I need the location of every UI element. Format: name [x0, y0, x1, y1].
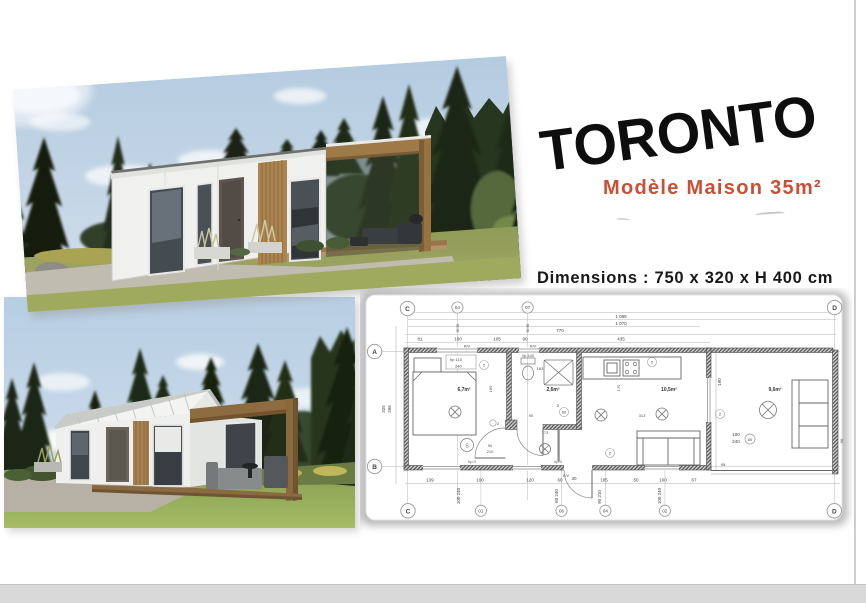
svg-text:2,6m²: 2,6m²: [546, 387, 559, 393]
svg-text:50: 50: [633, 478, 639, 483]
svg-text:50 50: 50 50: [526, 324, 530, 333]
svg-text:02: 02: [662, 508, 668, 513]
svg-text:B: B: [372, 464, 377, 471]
svg-text:A: A: [372, 349, 377, 356]
svg-text:07: 07: [525, 305, 531, 310]
svg-text:90: 90: [488, 443, 493, 448]
svg-text:6,7m²: 6,7m²: [457, 387, 470, 393]
svg-text:60: 60: [562, 410, 567, 415]
svg-text:325: 325: [381, 405, 386, 413]
svg-text:170: 170: [616, 384, 621, 391]
svg-text:240: 240: [455, 364, 462, 369]
svg-text:01: 01: [478, 508, 484, 513]
svg-text:30: 30: [571, 476, 577, 481]
svg-text:hp 110: hp 110: [450, 357, 463, 362]
svg-text:hp 140: hp 140: [522, 354, 534, 358]
svg-text:190: 190: [717, 378, 722, 386]
svg-text:100: 100: [659, 478, 667, 483]
svg-text:50 50: 50 50: [456, 324, 460, 333]
svg-text:90: 90: [522, 337, 528, 342]
svg-text:210: 210: [487, 449, 494, 454]
svg-text:90: 90: [529, 413, 534, 418]
svg-text:163: 163: [537, 366, 544, 371]
svg-text:240: 240: [732, 439, 740, 444]
svg-text:100: 100: [454, 337, 462, 342]
svg-text:100 240: 100 240: [657, 487, 662, 504]
svg-text:1 070: 1 070: [615, 321, 627, 326]
svg-text:90: 90: [839, 438, 844, 443]
svg-text:C: C: [406, 508, 411, 515]
svg-text:D: D: [832, 508, 837, 515]
svg-text:139: 139: [426, 478, 434, 483]
svg-text:296: 296: [387, 405, 392, 413]
svg-text:100: 100: [732, 432, 740, 437]
svg-text:D: D: [832, 305, 837, 312]
svg-text:67: 67: [691, 478, 697, 483]
svg-text:2: 2: [497, 422, 499, 426]
svg-text:06: 06: [559, 508, 565, 513]
svg-text:180: 180: [488, 385, 493, 392]
svg-text:313: 313: [639, 413, 646, 418]
svg-text:10,5m²: 10,5m²: [661, 387, 677, 393]
svg-text:120: 120: [526, 478, 534, 483]
svg-text:60: 60: [748, 437, 753, 442]
svg-text:9,6m²: 9,6m²: [768, 387, 781, 393]
svg-text:60 240: 60 240: [554, 489, 559, 503]
svg-text:770: 770: [556, 328, 564, 333]
svg-text:100 240: 100 240: [456, 487, 461, 504]
svg-text:1 089: 1 089: [615, 314, 627, 319]
svg-text:105: 105: [600, 478, 608, 483]
svg-text:173: 173: [542, 430, 549, 435]
svg-text:90 210: 90 210: [597, 490, 602, 504]
svg-text:hp 0: hp 0: [554, 459, 563, 464]
svg-text:hp 0: hp 0: [468, 459, 477, 464]
svg-text:C: C: [405, 306, 410, 313]
svg-text:81: 81: [417, 337, 423, 342]
svg-text:04: 04: [603, 508, 609, 513]
svg-text:04: 04: [455, 305, 461, 310]
svg-text:435: 435: [617, 337, 625, 342]
svg-text:95: 95: [721, 462, 726, 467]
svg-text:105: 105: [493, 337, 501, 342]
svg-text:60: 60: [557, 478, 563, 483]
svg-text:100: 100: [476, 478, 484, 483]
